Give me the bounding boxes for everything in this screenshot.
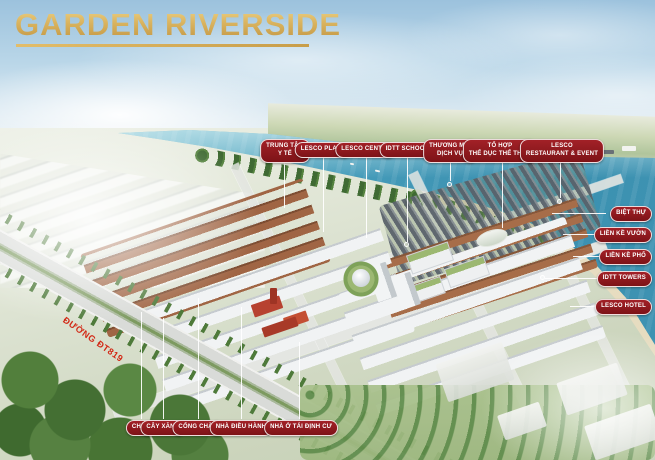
- leader-dot-lesco-restaurant-event: [557, 199, 562, 204]
- leader-line-to-hop-the-duc-the-thao: [502, 160, 503, 228]
- title-underline: [16, 44, 309, 47]
- leader-dot-thuong-mai-dich-vu: [447, 182, 452, 187]
- forest-park: [0, 330, 260, 460]
- leader-line-cay-xang: [163, 318, 164, 419]
- label-nha-o-tai-dinh-cu[interactable]: NHÀ Ở TÁI ĐỊNH CƯ: [264, 420, 338, 436]
- leader-line-trung-tam-y-te: [284, 160, 285, 208]
- label-lien-ke-vuon[interactable]: LIỀN KỀ VƯỜN: [594, 227, 652, 243]
- leader-line-chua: [141, 312, 142, 419]
- leader-line-lesco-center: [366, 156, 367, 238]
- leader-dot-idtt-school: [404, 242, 409, 247]
- leader-line-lesco-plaza: [323, 156, 324, 232]
- leader-line-nha-dieu-hanh: [241, 307, 242, 419]
- leader-line-nha-o-tai-dinh-cu: [299, 342, 300, 419]
- label-biet-thu[interactable]: BIỆT THỰ: [610, 206, 652, 222]
- far-shore-building: [622, 146, 636, 151]
- label-lesco-restaurant-event[interactable]: LESCO RESTAURANT & EVENT: [520, 139, 604, 163]
- leader-line-lesco-restaurant-event: [560, 160, 561, 198]
- dome-building: [352, 269, 370, 287]
- masterplan-image: ĐƯỜNG ĐT819 TRUNG TÂM Y TẾ LESCO PLAZA L…: [0, 0, 655, 460]
- label-idtt-towers[interactable]: IDTT TOWERS: [597, 271, 652, 287]
- label-lesco-hotel[interactable]: LESCO HOTEL: [595, 299, 652, 315]
- label-nha-dieu-hanh[interactable]: NHÀ ĐIỀU HÀNH: [210, 420, 273, 436]
- label-lien-ke-pho[interactable]: LIỀN KỀ PHỐ: [599, 249, 652, 265]
- leader-line-cong-chao: [198, 298, 199, 419]
- pagoda-tower: [270, 288, 277, 304]
- leader-line-thuong-mai-dich-vu: [450, 160, 451, 181]
- leader-dot-idtt-towers: [540, 275, 545, 280]
- leader-line-idtt-school: [407, 156, 408, 242]
- leader-line-biet-thu: [552, 213, 606, 214]
- project-title: GARDEN RIVERSIDE: [15, 7, 341, 43]
